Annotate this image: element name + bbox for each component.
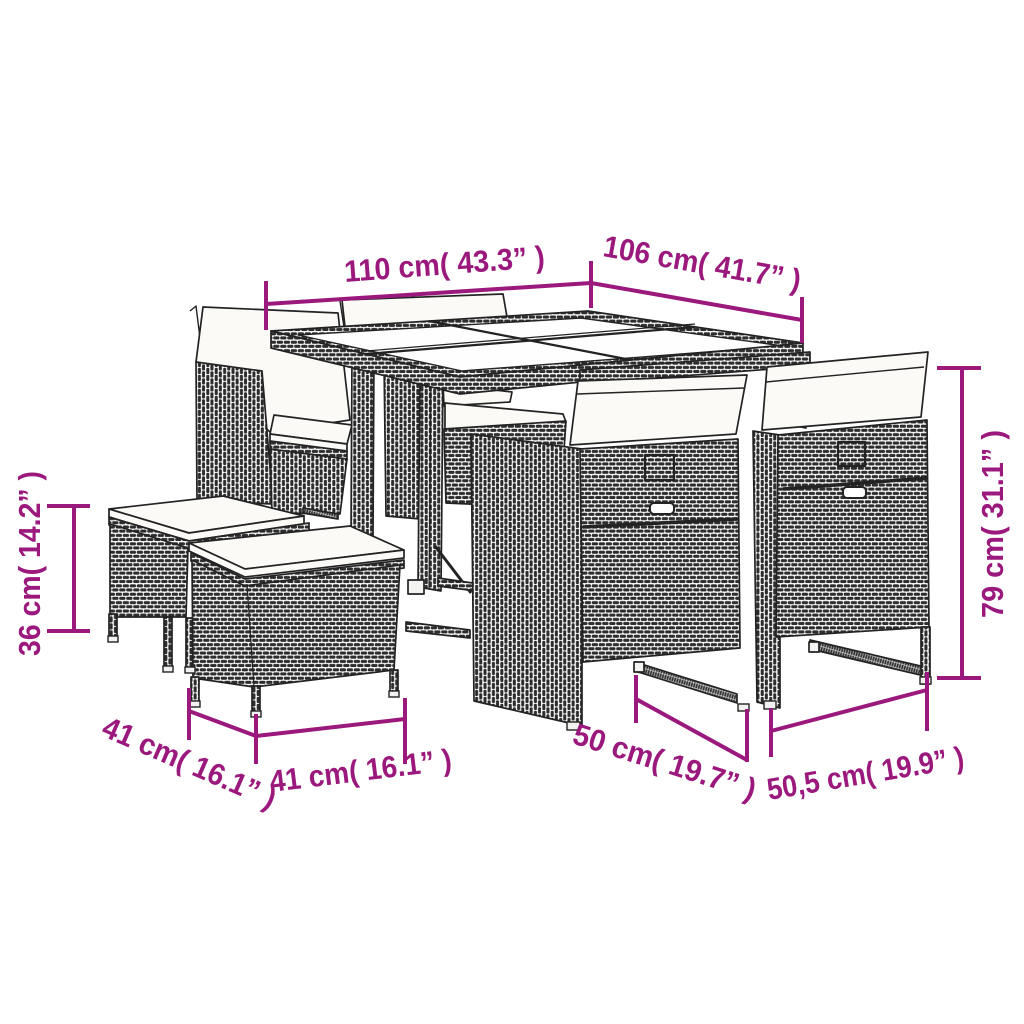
svg-text:79 cm( 31.1” ): 79 cm( 31.1” ) bbox=[976, 430, 1010, 618]
svg-text:36 cm( 14.2” ): 36 cm( 14.2” ) bbox=[13, 471, 47, 656]
